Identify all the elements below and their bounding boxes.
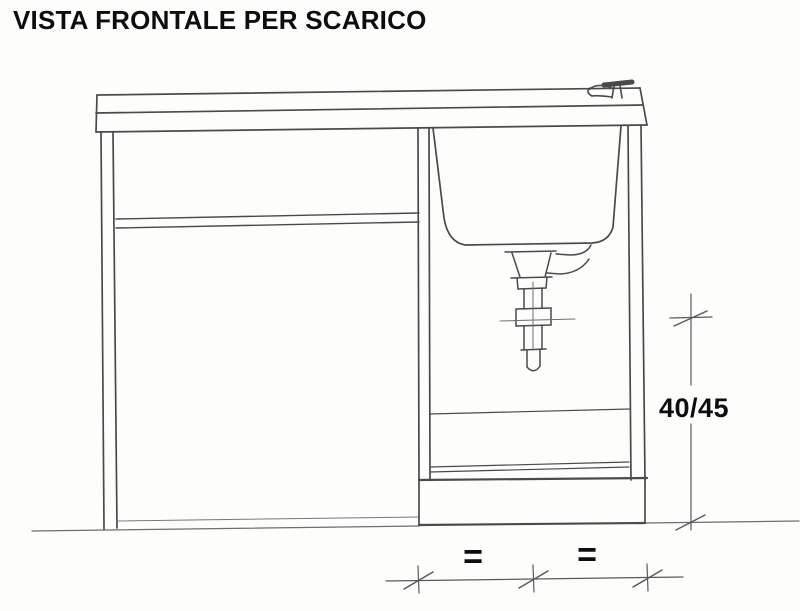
plinth-top	[419, 478, 647, 480]
equal-mark-left: =	[455, 538, 491, 577]
equal-mark-right: =	[569, 536, 605, 575]
countertop-right-edge	[640, 88, 647, 125]
drain-trap	[505, 251, 556, 371]
left-leg	[101, 132, 117, 529]
left-compartment-base	[117, 517, 419, 521]
drain-joint	[521, 349, 546, 350]
countertop	[96, 88, 647, 132]
drawing-canvas	[0, 0, 800, 611]
plinth	[419, 478, 647, 525]
faucet-handle	[604, 82, 632, 85]
faucet	[588, 82, 632, 98]
technical-drawing: VISTA FRONTALE PER SCARICO 40/45 = =	[0, 0, 800, 611]
height-dimension-label: 40/45	[652, 393, 736, 424]
right-side-panel	[628, 125, 645, 480]
countertop-left-edge	[96, 95, 97, 132]
countertop-top-edge	[97, 88, 640, 95]
drawing-title: VISTA FRONTALE PER SCARICO	[13, 5, 427, 36]
cabinet-interior-lines	[430, 409, 630, 472]
overflow-pipe	[547, 245, 591, 274]
divider-panel	[418, 128, 430, 480]
sink-basin	[433, 126, 621, 245]
equal-spacing-dimension	[386, 564, 683, 593]
shelf	[116, 213, 419, 228]
plinth-bottom	[419, 523, 645, 525]
countertop-mid-edge	[96, 105, 643, 113]
countertop-bottom-edge	[96, 125, 647, 132]
drain-funnel	[505, 251, 556, 252]
drain-centerlines	[500, 282, 575, 348]
horizontal-centerline	[500, 319, 575, 321]
